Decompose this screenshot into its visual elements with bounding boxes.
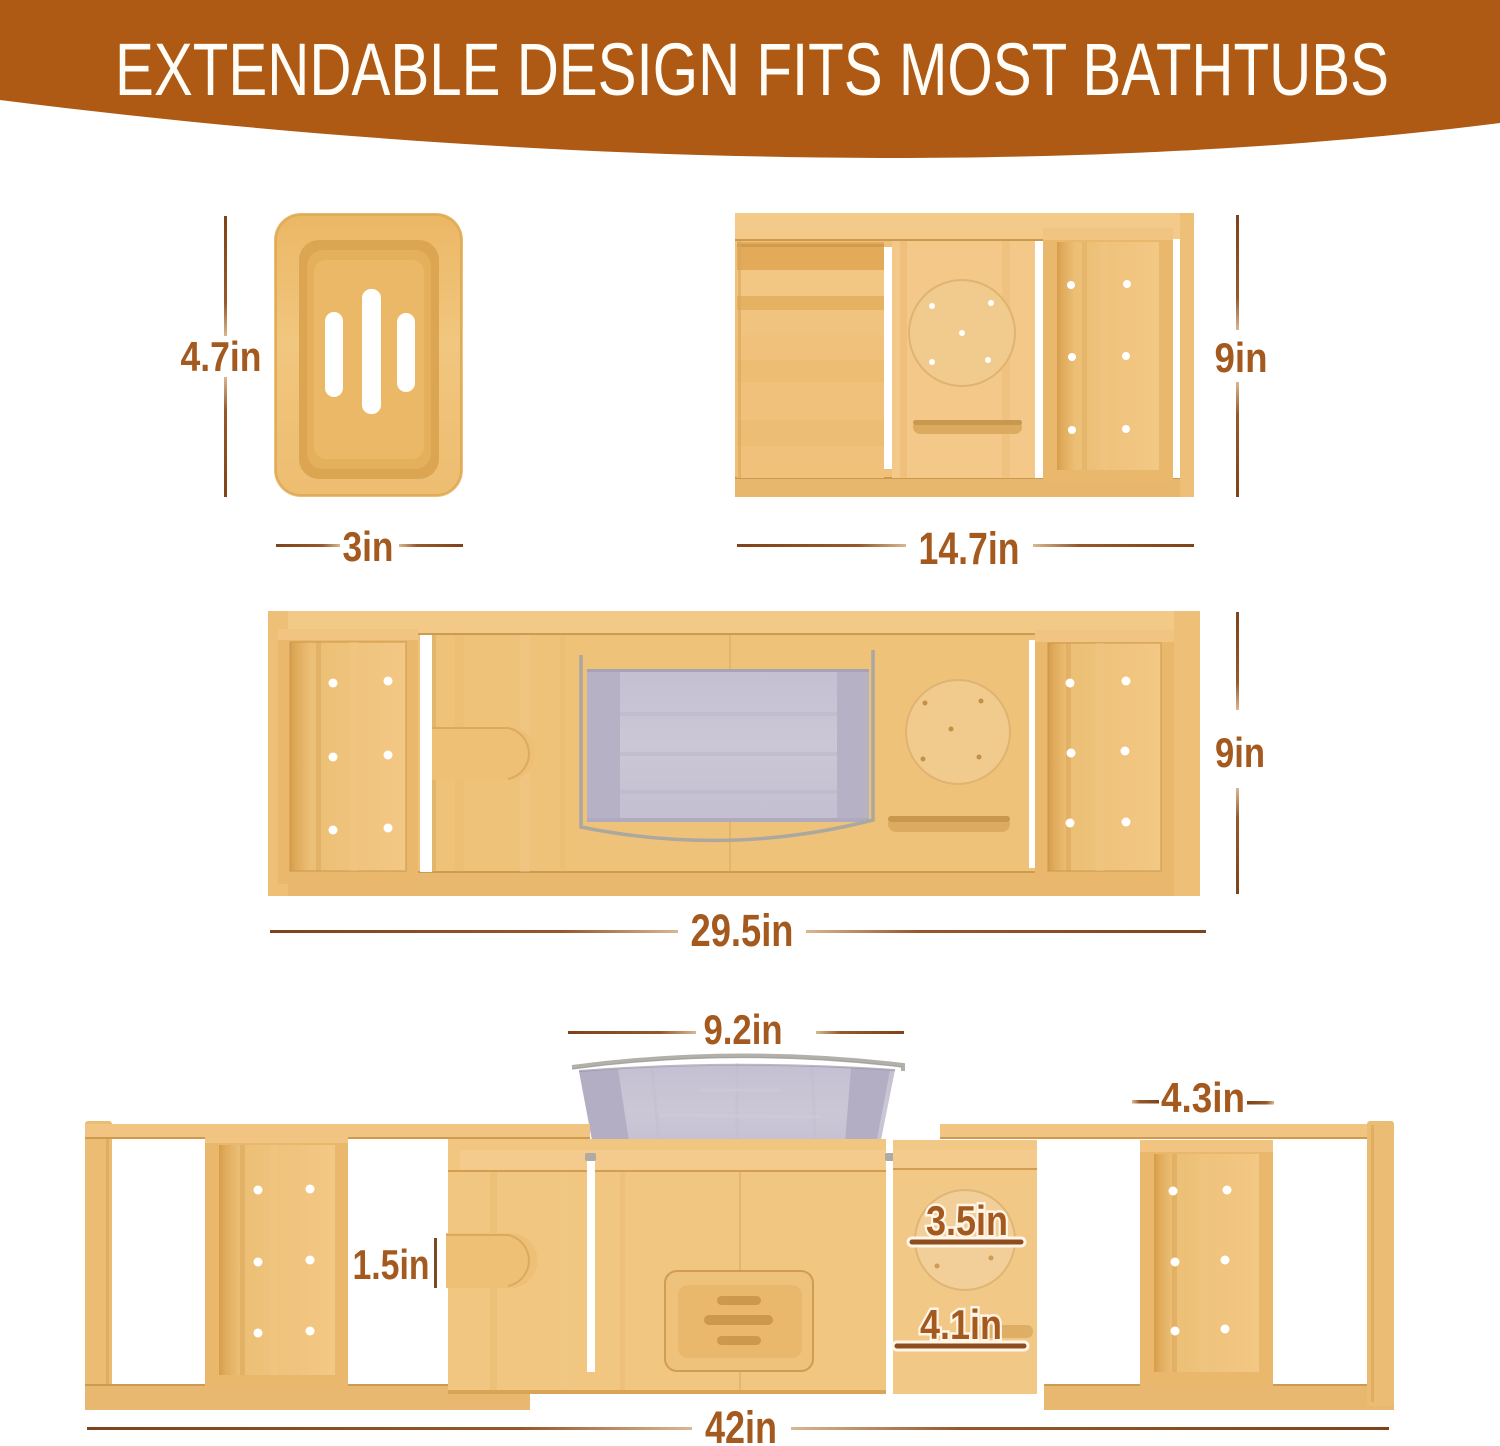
svg-text:EXTENDABLE DESIGN FITS MOST BA: EXTENDABLE DESIGN FITS MOST BATHTUBS <box>115 28 1389 111</box>
svg-text:29.5in: 29.5in <box>691 905 794 956</box>
svg-text:4.3in: 4.3in <box>1161 1074 1245 1121</box>
svg-text:4.1in: 4.1in <box>920 1301 1002 1348</box>
svg-text:9in: 9in <box>1215 729 1265 776</box>
svg-text:14.7in: 14.7in <box>919 523 1020 574</box>
svg-text:3in: 3in <box>343 523 394 570</box>
svg-text:4.7in: 4.7in <box>181 333 262 380</box>
svg-text:9.2in: 9.2in <box>704 1006 783 1053</box>
svg-text:3.5in: 3.5in <box>926 1197 1008 1244</box>
svg-text:42in: 42in <box>705 1402 777 1446</box>
svg-text:1.5in: 1.5in <box>353 1241 430 1288</box>
svg-text:9in: 9in <box>1215 334 1268 381</box>
